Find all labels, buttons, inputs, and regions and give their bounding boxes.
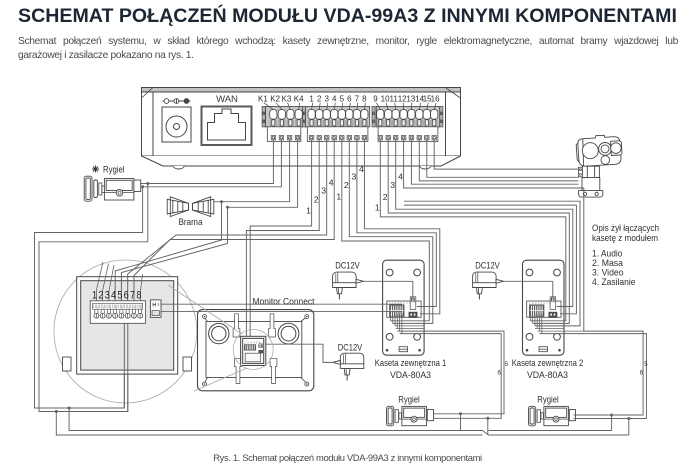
svg-text:Rygiel: Rygiel — [537, 395, 559, 405]
svg-text:4: 4 — [329, 178, 334, 188]
svg-text:2: 2 — [383, 192, 388, 202]
svg-text:8: 8 — [136, 290, 141, 302]
svg-text:K1: K1 — [258, 95, 268, 104]
svg-text:3: 3 — [105, 290, 110, 302]
svg-text:5: 5 — [505, 362, 509, 368]
svg-text:1: 1 — [309, 95, 314, 104]
svg-text:Brama: Brama — [179, 217, 203, 227]
svg-text:Kaseta zewnętrzna 1: Kaseta zewnętrzna 1 — [375, 358, 447, 368]
svg-text:4: 4 — [359, 164, 364, 174]
svg-text:3: 3 — [324, 95, 329, 104]
svg-text:2: 2 — [98, 290, 103, 302]
svg-text:4: 4 — [398, 172, 403, 182]
svg-text:K3: K3 — [282, 95, 292, 104]
svg-text:VDA-80A3: VDA-80A3 — [527, 370, 568, 380]
svg-text:5: 5 — [117, 290, 122, 302]
svg-text:2: 2 — [344, 180, 349, 190]
svg-text:2: 2 — [314, 195, 319, 205]
svg-text:5: 5 — [644, 362, 648, 368]
svg-text:4. Zasilanie: 4. Zasilanie — [592, 277, 636, 288]
svg-text:VDA-80A3: VDA-80A3 — [390, 370, 431, 380]
svg-text:8: 8 — [362, 95, 367, 104]
svg-text:4: 4 — [111, 290, 116, 302]
svg-text:4: 4 — [332, 95, 337, 104]
svg-text:3: 3 — [321, 186, 326, 196]
svg-text:6: 6 — [124, 290, 129, 302]
svg-text:7: 7 — [355, 95, 360, 104]
svg-text:1: 1 — [306, 206, 311, 216]
svg-text:DC12V: DC12V — [475, 261, 500, 271]
svg-text:9: 9 — [373, 95, 378, 104]
svg-text:WAN: WAN — [216, 94, 238, 105]
svg-text:Kaseta zewnętrzna 2: Kaseta zewnętrzna 2 — [512, 358, 584, 368]
svg-text:1 2 3 4 5 6: 1 2 3 4 5 6 — [244, 341, 261, 345]
svg-text:1: 1 — [336, 192, 341, 202]
svg-text:3: 3 — [351, 172, 356, 182]
svg-text:Rygiel: Rygiel — [103, 165, 125, 175]
svg-text:1: 1 — [92, 290, 97, 302]
svg-text:K4: K4 — [294, 95, 304, 104]
svg-text:2: 2 — [317, 95, 322, 104]
svg-text:K2: K2 — [270, 95, 280, 104]
svg-text:16: 16 — [431, 95, 440, 104]
svg-text:5: 5 — [340, 95, 345, 104]
svg-text:DC12V: DC12V — [335, 261, 360, 271]
svg-text:kasetę z modułem: kasetę z modułem — [592, 233, 658, 244]
svg-text:6: 6 — [347, 95, 352, 104]
svg-text:Monitor Connect: Monitor Connect — [253, 297, 315, 308]
svg-text:7: 7 — [130, 290, 135, 302]
svg-text:Rygiel: Rygiel — [398, 395, 420, 405]
svg-text:3: 3 — [390, 180, 395, 190]
svg-text:1: 1 — [375, 203, 380, 213]
svg-text:DC12V: DC12V — [338, 343, 363, 353]
